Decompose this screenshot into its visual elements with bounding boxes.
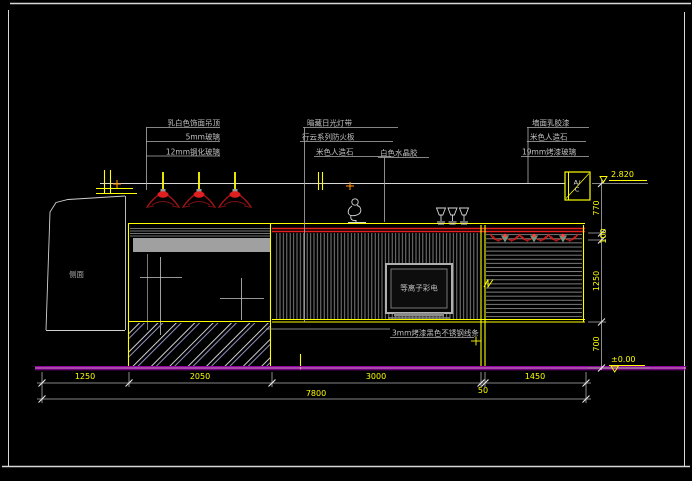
dim-1250-v: 1250 xyxy=(593,271,601,291)
cad-drawing-viewport: 乳白色饰面吊顶 5mm玻璃 12mm钢化玻璃 暗藏日光灯带 行云系列防火板 米色… xyxy=(0,0,692,481)
callout-artificial-stone-right: 米色人造石 xyxy=(530,134,568,142)
callout-5mm-glass: 5mm玻璃 xyxy=(186,134,220,142)
callout-cove-light: 暗藏日光灯带 xyxy=(307,120,352,128)
ac-label: A/ C xyxy=(574,180,581,193)
wall-section-label: 侧面 xyxy=(69,271,84,279)
dim-770: 770 xyxy=(593,200,601,215)
dim-total-7800: 7800 xyxy=(306,390,326,398)
dim-2050: 2050 xyxy=(190,373,210,381)
pendant-lamp-icons xyxy=(146,172,252,208)
elevation-floor-value: ±0.00 xyxy=(611,356,636,364)
sculpture-icon xyxy=(348,199,366,223)
dim-100: 100 xyxy=(600,228,608,243)
dim-700: 700 xyxy=(593,336,601,351)
ceiling-detail xyxy=(96,170,590,194)
dim-1450: 1450 xyxy=(525,373,545,381)
dim-50: 50 xyxy=(478,387,488,395)
hatch-section xyxy=(128,322,270,367)
callout-artificial-stone: 米色人造石 xyxy=(316,149,354,157)
callout-19mm-glass: 19mm烤漆玻璃 xyxy=(522,149,576,157)
callout-ceiling-finish: 乳白色饰面吊顶 xyxy=(168,120,221,128)
elevation-drawing xyxy=(0,0,692,481)
countertop-face xyxy=(133,238,270,252)
callout-fireproof-board: 行云系列防火板 xyxy=(302,134,355,142)
downlight-icons xyxy=(113,180,354,190)
callout-wall-paint: 墙面乳胶漆 xyxy=(532,120,570,128)
tv-label: 等离子彩电 xyxy=(400,284,438,292)
callout-12mm-glass: 12mm钢化玻璃 xyxy=(166,148,220,156)
callout-crystal-glue: 白色水晶胶 xyxy=(380,150,418,158)
wall-section-left xyxy=(46,196,126,331)
elevation-top-value: 2.820 xyxy=(611,171,634,179)
dimension-lines-bottom xyxy=(37,372,591,403)
dim-1250: 1250 xyxy=(75,373,95,381)
callout-metal-strip: 3mm烤漆黑色不锈钢线条 xyxy=(392,330,479,338)
dim-3000: 3000 xyxy=(366,373,386,381)
wine-glass-icons xyxy=(437,208,469,224)
